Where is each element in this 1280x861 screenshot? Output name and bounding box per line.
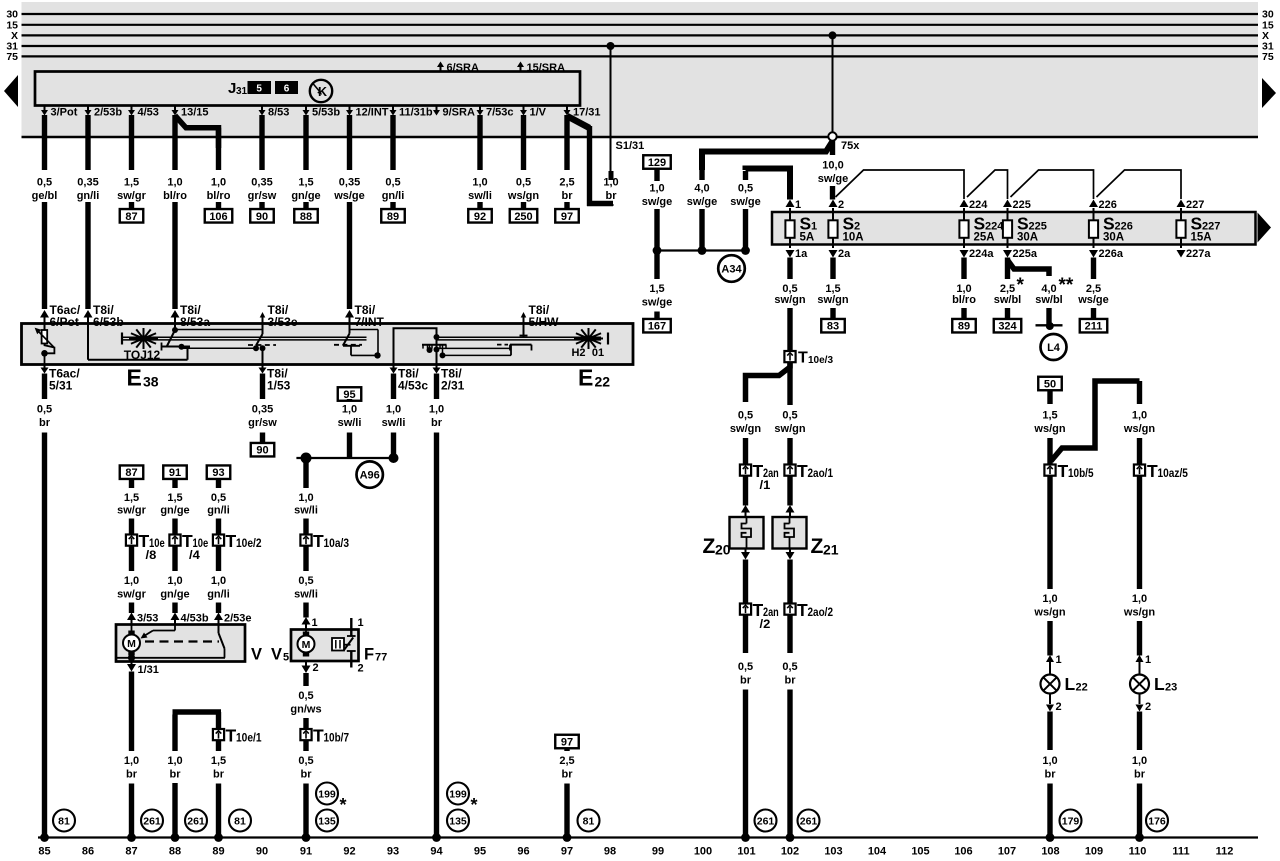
svg-text:sw/li: sw/li	[468, 190, 492, 202]
svg-text:135: 135	[449, 815, 467, 827]
svg-text:87: 87	[125, 467, 137, 479]
svg-text:0,35: 0,35	[339, 177, 360, 189]
svg-text:81: 81	[583, 815, 595, 827]
svg-text:ws/gn: ws/gn	[1033, 607, 1065, 619]
svg-text:br: br	[740, 675, 752, 687]
svg-text:1: 1	[795, 199, 801, 211]
svg-text:TOJ12: TOJ12	[124, 348, 161, 362]
svg-text:br: br	[170, 769, 182, 781]
svg-text:227: 227	[1186, 199, 1204, 211]
svg-text:4,0: 4,0	[694, 183, 709, 195]
svg-text:sw/ge: sw/ge	[642, 297, 673, 309]
svg-text:30A: 30A	[1103, 231, 1124, 243]
svg-text:0,5: 0,5	[385, 177, 400, 189]
svg-text:83: 83	[827, 321, 839, 333]
svg-text:91: 91	[169, 467, 181, 479]
svg-text:sw/ge: sw/ge	[818, 173, 849, 185]
svg-text:89: 89	[212, 846, 224, 858]
svg-text:1,0: 1,0	[298, 492, 313, 504]
svg-text:0,35: 0,35	[77, 177, 98, 189]
svg-text:90: 90	[256, 211, 268, 223]
svg-text:17/31: 17/31	[573, 107, 601, 119]
svg-text:50: 50	[1044, 379, 1056, 391]
svg-text:75: 75	[6, 51, 18, 63]
svg-text:gn/ge: gn/ge	[160, 589, 189, 601]
svg-text:sw/gn: sw/gn	[730, 423, 761, 435]
svg-text:sw/ge: sw/ge	[730, 196, 761, 208]
svg-text:88: 88	[169, 846, 181, 858]
svg-text:1,0: 1,0	[429, 404, 444, 416]
svg-text:5/31: 5/31	[49, 379, 73, 393]
svg-text:2: 2	[1145, 701, 1151, 713]
svg-text:96: 96	[517, 846, 529, 858]
svg-text:89: 89	[958, 321, 970, 333]
svg-text:135: 135	[318, 815, 336, 827]
svg-text:1,5: 1,5	[211, 755, 226, 767]
svg-text:1,5: 1,5	[167, 492, 182, 504]
svg-text:199: 199	[449, 788, 467, 800]
svg-text:1/53: 1/53	[267, 379, 291, 393]
svg-text:1: 1	[1056, 654, 1062, 666]
svg-text:261: 261	[143, 815, 161, 827]
svg-text:ws/gn: ws/gn	[1123, 607, 1155, 619]
svg-text:br: br	[606, 190, 618, 202]
svg-text:0,5: 0,5	[782, 410, 797, 422]
svg-text:1,0: 1,0	[167, 755, 182, 767]
svg-text:A34: A34	[721, 263, 742, 275]
svg-text:10e/3: 10e/3	[808, 355, 833, 366]
svg-text:E: E	[578, 365, 593, 391]
svg-text:br: br	[301, 769, 313, 781]
svg-text:100: 100	[694, 846, 712, 858]
svg-text:2an: 2an	[763, 605, 779, 619]
svg-text:1,0: 1,0	[1132, 593, 1147, 605]
svg-text:V: V	[271, 646, 282, 664]
svg-text:ws/gn: ws/gn	[1123, 423, 1155, 435]
svg-text:bl/ro: bl/ro	[163, 190, 187, 202]
svg-text:13/15: 13/15	[181, 107, 209, 119]
svg-text:93: 93	[387, 846, 399, 858]
svg-text:L: L	[1065, 674, 1076, 694]
svg-text:gn/li: gn/li	[207, 505, 230, 517]
svg-text:3/53e: 3/53e	[268, 315, 298, 329]
svg-text:E: E	[127, 365, 142, 391]
svg-text:226: 226	[1099, 199, 1117, 211]
svg-text:1,5: 1,5	[649, 283, 664, 295]
svg-text:br: br	[562, 769, 574, 781]
svg-text:0,35: 0,35	[252, 404, 273, 416]
svg-text:107: 107	[998, 846, 1016, 858]
svg-text:38: 38	[143, 374, 159, 390]
svg-text:224: 224	[969, 199, 988, 211]
svg-text:br: br	[39, 417, 51, 429]
svg-text:11/31b: 11/31b	[399, 107, 433, 119]
svg-text:sw/ge: sw/ge	[642, 196, 673, 208]
svg-text:sw/li: sw/li	[382, 417, 406, 429]
svg-text:75x: 75x	[841, 140, 860, 152]
svg-text:4/53b: 4/53b	[181, 613, 209, 625]
svg-text:224a: 224a	[969, 248, 994, 260]
svg-text:Z: Z	[811, 535, 824, 558]
svg-text:L: L	[1154, 674, 1165, 694]
svg-text:1,0: 1,0	[211, 575, 226, 587]
svg-text:0,5: 0,5	[738, 661, 753, 673]
svg-text:1,0: 1,0	[124, 575, 139, 587]
svg-text:261: 261	[800, 815, 818, 827]
svg-text:ws/ge: ws/ge	[333, 190, 365, 202]
svg-text:20: 20	[715, 542, 731, 558]
svg-text:T: T	[753, 461, 764, 481]
svg-text:10az/5: 10az/5	[1158, 466, 1189, 480]
svg-text:101: 101	[737, 846, 755, 858]
svg-text:sw/li: sw/li	[294, 505, 318, 517]
svg-text:106: 106	[209, 211, 227, 223]
svg-text:31: 31	[236, 86, 248, 97]
svg-text:sw/gr: sw/gr	[117, 505, 146, 517]
svg-text:110: 110	[1129, 846, 1147, 858]
svg-text:22: 22	[595, 374, 611, 390]
svg-text:261: 261	[187, 815, 205, 827]
svg-text:0,5: 0,5	[37, 177, 52, 189]
svg-text:92: 92	[343, 846, 355, 858]
svg-text:/1: /1	[760, 480, 771, 492]
svg-text:10b/7: 10b/7	[324, 731, 350, 745]
svg-text:2,5: 2,5	[559, 177, 574, 189]
svg-text:3/53: 3/53	[137, 613, 158, 625]
svg-text:sw/li: sw/li	[338, 417, 362, 429]
svg-text:01: 01	[592, 347, 604, 359]
svg-text:2,5: 2,5	[559, 755, 574, 767]
svg-text:87: 87	[125, 211, 137, 223]
svg-text:30A: 30A	[1017, 231, 1038, 243]
svg-text:gr/sw: gr/sw	[248, 190, 277, 202]
svg-text:A96: A96	[360, 469, 380, 481]
svg-text:1,5: 1,5	[1042, 410, 1057, 422]
svg-text:99: 99	[652, 846, 664, 858]
svg-text:5A: 5A	[800, 231, 815, 243]
svg-text:103: 103	[824, 846, 842, 858]
svg-text:167: 167	[648, 321, 666, 333]
svg-text:87: 87	[125, 846, 137, 858]
svg-text:br: br	[126, 769, 138, 781]
svg-text:1,0: 1,0	[649, 183, 664, 195]
svg-text:V: V	[251, 646, 262, 664]
svg-text:4/53c: 4/53c	[398, 379, 428, 393]
svg-text:12/INT: 12/INT	[356, 107, 389, 119]
svg-text:261: 261	[757, 815, 775, 827]
svg-text:/2: /2	[760, 619, 771, 631]
svg-text:97: 97	[561, 737, 573, 749]
svg-text:0,5: 0,5	[298, 575, 313, 587]
svg-text:2ao/2: 2ao/2	[808, 605, 834, 619]
svg-text:0,5: 0,5	[298, 690, 313, 702]
svg-text:/8: /8	[146, 550, 157, 562]
svg-text:0,5: 0,5	[738, 183, 753, 195]
svg-text:129: 129	[648, 157, 666, 169]
svg-text:25A: 25A	[974, 231, 995, 243]
svg-text:3/Pot: 3/Pot	[51, 107, 78, 119]
svg-text:ws/gn: ws/gn	[507, 190, 539, 202]
svg-text:0,5: 0,5	[782, 661, 797, 673]
svg-text:0,5: 0,5	[298, 755, 313, 767]
svg-text:1/31: 1/31	[138, 664, 159, 676]
svg-text:85: 85	[38, 846, 50, 858]
svg-text:br: br	[785, 675, 797, 687]
svg-text:**: **	[1059, 275, 1074, 296]
svg-text:1,0: 1,0	[386, 404, 401, 416]
svg-text:10b/5: 10b/5	[1068, 466, 1094, 480]
svg-text:93: 93	[212, 467, 224, 479]
svg-text:sw/gr: sw/gr	[117, 190, 146, 202]
svg-text:15A: 15A	[1191, 231, 1212, 243]
svg-text:*: *	[1017, 275, 1025, 296]
svg-text:1,5: 1,5	[124, 177, 139, 189]
svg-text:211: 211	[1085, 321, 1103, 333]
svg-text:gn/ge: gn/ge	[291, 190, 320, 202]
svg-text:1,0: 1,0	[603, 177, 618, 189]
svg-text:2/31: 2/31	[441, 379, 465, 393]
svg-text:T: T	[798, 350, 808, 367]
svg-text:2: 2	[358, 663, 364, 675]
svg-text:sw/gn: sw/gn	[774, 423, 805, 435]
svg-text:6/53b: 6/53b	[93, 315, 124, 329]
svg-text:1,0: 1,0	[1042, 593, 1057, 605]
svg-text:10e/1: 10e/1	[236, 731, 262, 745]
svg-text:5: 5	[283, 652, 289, 664]
svg-text:T: T	[313, 531, 324, 551]
svg-text:0,5: 0,5	[516, 177, 531, 189]
svg-text:10e/2: 10e/2	[236, 536, 262, 550]
svg-text:5: 5	[256, 84, 262, 95]
svg-text:gn/ws: gn/ws	[290, 704, 321, 716]
svg-text:6: 6	[284, 84, 290, 95]
svg-text:23: 23	[1165, 682, 1177, 694]
svg-text:0,5: 0,5	[211, 492, 226, 504]
svg-text:21: 21	[823, 542, 839, 558]
svg-text:95: 95	[474, 846, 486, 858]
svg-text:gn/li: gn/li	[207, 589, 230, 601]
svg-text:112: 112	[1216, 846, 1234, 858]
svg-text:106: 106	[954, 846, 972, 858]
svg-text:sw/li: sw/li	[294, 589, 318, 601]
svg-text:108: 108	[1041, 846, 1059, 858]
svg-text:10e: 10e	[149, 536, 165, 550]
svg-text:sw/gn: sw/gn	[774, 294, 805, 306]
svg-text:2/53b: 2/53b	[94, 107, 122, 119]
svg-text:1,0: 1,0	[167, 177, 182, 189]
svg-text:1a: 1a	[795, 248, 808, 260]
svg-text:1,0: 1,0	[124, 755, 139, 767]
svg-text:86: 86	[82, 846, 94, 858]
svg-text:Z: Z	[703, 535, 716, 558]
svg-text:104: 104	[868, 846, 887, 858]
svg-text:sw/gn: sw/gn	[817, 294, 848, 306]
svg-text:1,0: 1,0	[472, 177, 487, 189]
svg-text:324: 324	[998, 321, 1017, 333]
svg-text:97: 97	[561, 846, 573, 858]
svg-text:1,0: 1,0	[167, 575, 182, 587]
svg-text:22: 22	[1076, 682, 1088, 694]
svg-text:sw/ge: sw/ge	[687, 196, 718, 208]
svg-text:109: 109	[1085, 846, 1103, 858]
svg-text:90: 90	[256, 445, 268, 457]
svg-text:ws/gn: ws/gn	[1033, 423, 1065, 435]
svg-text:1,0: 1,0	[1132, 410, 1147, 422]
svg-text:2ao/1: 2ao/1	[808, 466, 834, 480]
svg-text:T: T	[313, 726, 324, 746]
svg-text:250: 250	[514, 211, 532, 223]
svg-text:ge/bl: ge/bl	[32, 190, 58, 202]
svg-text:T: T	[226, 531, 237, 551]
svg-text:T: T	[226, 726, 237, 746]
svg-text:*: *	[340, 795, 347, 815]
svg-text:2a: 2a	[838, 248, 851, 260]
svg-text:gn/ge: gn/ge	[160, 505, 189, 517]
svg-text:10A: 10A	[843, 231, 864, 243]
svg-text:ws/ge: ws/ge	[1077, 294, 1109, 306]
svg-text:2: 2	[313, 662, 319, 674]
svg-text:225a: 225a	[1013, 248, 1038, 260]
svg-text:br: br	[213, 769, 225, 781]
svg-text:105: 105	[911, 846, 929, 858]
svg-text:T: T	[1147, 461, 1158, 481]
svg-text:6/SRA: 6/SRA	[447, 62, 479, 74]
svg-text:7/53c: 7/53c	[486, 107, 514, 119]
svg-text:T: T	[182, 531, 193, 551]
svg-text:6/Pot: 6/Pot	[50, 315, 79, 329]
svg-text:1,5: 1,5	[124, 492, 139, 504]
svg-text:176: 176	[1148, 815, 1166, 827]
svg-text:1,0: 1,0	[1132, 755, 1147, 767]
svg-text:227a: 227a	[1186, 248, 1211, 260]
svg-text:T: T	[797, 600, 808, 620]
svg-text:0,5: 0,5	[37, 404, 52, 416]
svg-text:92: 92	[474, 211, 486, 223]
svg-text:2an: 2an	[763, 466, 779, 480]
svg-text:S1/31: S1/31	[616, 140, 645, 152]
svg-text:T: T	[753, 600, 764, 620]
svg-text:88: 88	[300, 211, 312, 223]
svg-text:7/INT: 7/INT	[355, 315, 385, 329]
svg-text:1,5: 1,5	[298, 177, 313, 189]
svg-text:0,5: 0,5	[738, 410, 753, 422]
svg-text:br: br	[431, 417, 443, 429]
svg-text:T: T	[797, 461, 808, 481]
svg-text:br: br	[1045, 769, 1057, 781]
svg-text:98: 98	[604, 846, 616, 858]
svg-text:91: 91	[300, 846, 312, 858]
svg-text:2: 2	[838, 199, 844, 211]
svg-text:1,0: 1,0	[211, 177, 226, 189]
svg-text:111: 111	[1172, 846, 1189, 858]
svg-text:5/HW: 5/HW	[529, 315, 560, 329]
svg-text:bl/ro: bl/ro	[207, 190, 231, 202]
svg-text:1: 1	[358, 617, 364, 629]
svg-text:2/53e: 2/53e	[224, 613, 252, 625]
svg-text:81: 81	[58, 815, 70, 827]
svg-text:90: 90	[256, 846, 268, 858]
svg-text:H2: H2	[571, 347, 585, 359]
svg-text:199: 199	[318, 788, 336, 800]
svg-text:1: 1	[1145, 654, 1151, 666]
svg-text:/4: /4	[189, 550, 200, 562]
svg-text:102: 102	[781, 846, 799, 858]
svg-text:M: M	[302, 639, 311, 651]
svg-text:8/53: 8/53	[268, 107, 289, 119]
svg-text:226a: 226a	[1099, 248, 1124, 260]
svg-text:1,0: 1,0	[1042, 755, 1057, 767]
svg-text:10e: 10e	[193, 536, 209, 550]
svg-text:1/V: 1/V	[530, 107, 547, 119]
svg-text:gn/li: gn/li	[77, 190, 100, 202]
svg-text:br: br	[562, 190, 574, 202]
svg-text:94: 94	[430, 846, 443, 858]
svg-text:2: 2	[1056, 701, 1062, 713]
svg-text:1: 1	[312, 617, 318, 629]
svg-text:179: 179	[1062, 815, 1080, 827]
svg-text:T: T	[139, 531, 150, 551]
svg-text:0,35: 0,35	[251, 177, 272, 189]
svg-text:89: 89	[387, 211, 399, 223]
svg-text:*: *	[471, 795, 478, 815]
svg-text:5/53b: 5/53b	[312, 107, 340, 119]
svg-text:L4: L4	[1047, 342, 1061, 354]
svg-text:15/SRA: 15/SRA	[527, 62, 566, 74]
svg-text:81: 81	[234, 815, 246, 827]
svg-text:gn/li: gn/li	[382, 190, 405, 202]
svg-text:gr/sw: gr/sw	[248, 417, 277, 429]
svg-text:9/SRA: 9/SRA	[443, 107, 475, 119]
svg-text:4/53: 4/53	[138, 107, 159, 119]
svg-text:97: 97	[561, 211, 573, 223]
svg-text:77: 77	[375, 652, 387, 664]
svg-text:sw/gr: sw/gr	[117, 589, 146, 601]
svg-text:T: T	[1058, 461, 1069, 481]
svg-text:8/53a: 8/53a	[180, 315, 210, 329]
svg-text:225: 225	[1013, 199, 1031, 211]
svg-text:10,0: 10,0	[822, 160, 843, 172]
svg-text:br: br	[1134, 769, 1146, 781]
svg-text:10a/3: 10a/3	[324, 536, 350, 550]
svg-text:F: F	[364, 646, 374, 664]
svg-text:M: M	[127, 638, 136, 650]
svg-text:75: 75	[1262, 51, 1274, 63]
svg-text:bl/ro: bl/ro	[952, 294, 976, 306]
svg-text:1,0: 1,0	[342, 404, 357, 416]
